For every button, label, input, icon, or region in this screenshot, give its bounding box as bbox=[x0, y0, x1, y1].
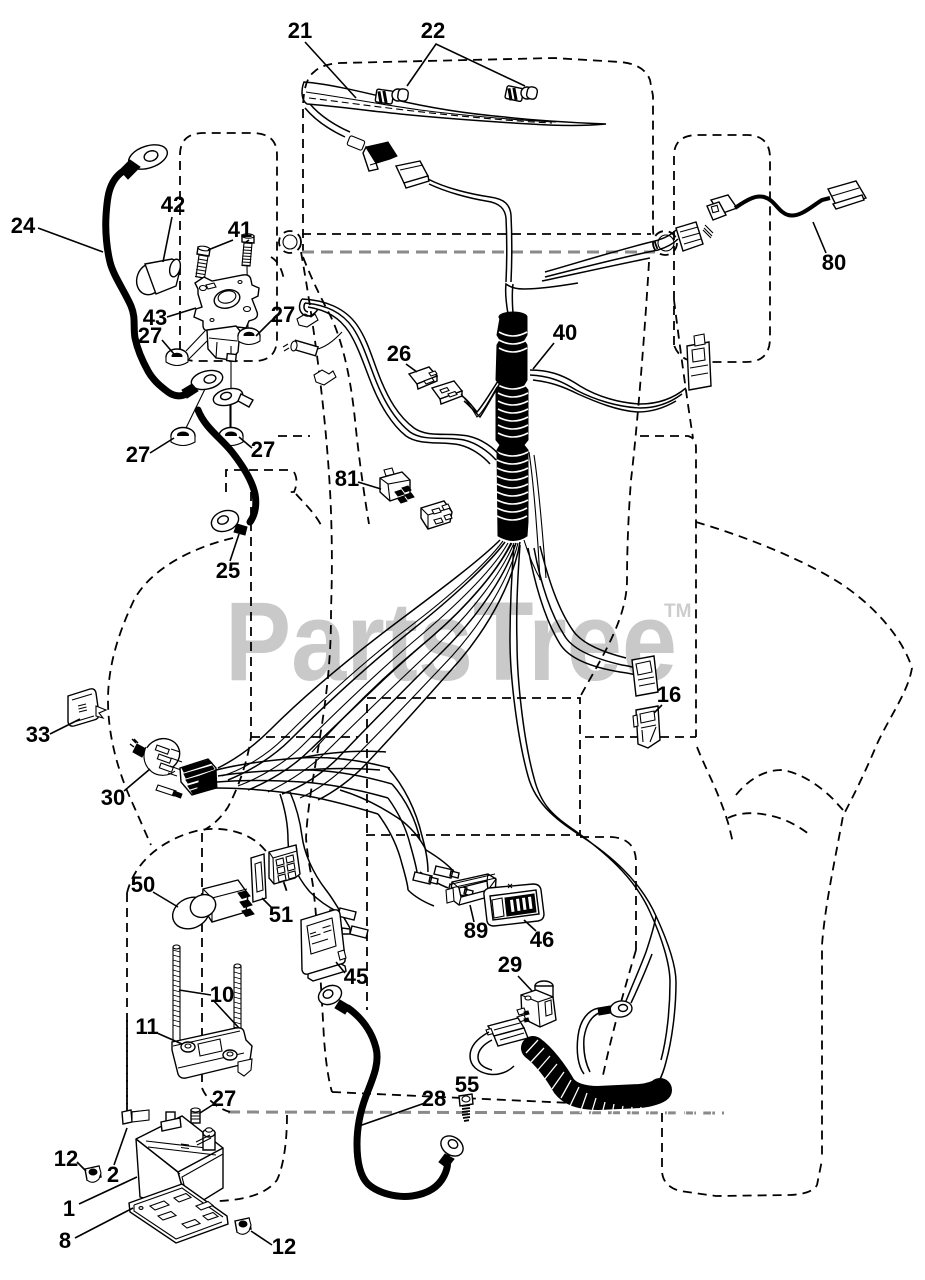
svg-text:27: 27 bbox=[212, 1086, 236, 1111]
svg-text:TM: TM bbox=[664, 601, 691, 622]
svg-text:8: 8 bbox=[59, 1228, 71, 1253]
svg-text:33: 33 bbox=[26, 722, 50, 747]
svg-text:1: 1 bbox=[63, 1196, 75, 1221]
svg-text:12: 12 bbox=[54, 1146, 78, 1171]
svg-text:55: 55 bbox=[455, 1072, 479, 1097]
svg-text:45: 45 bbox=[344, 964, 368, 989]
svg-text:89: 89 bbox=[464, 918, 488, 943]
svg-text:81: 81 bbox=[335, 466, 359, 491]
svg-text:26: 26 bbox=[387, 341, 411, 366]
svg-text:22: 22 bbox=[421, 18, 445, 43]
svg-text:30: 30 bbox=[101, 785, 125, 810]
svg-text:21: 21 bbox=[288, 18, 312, 43]
svg-text:41: 41 bbox=[228, 217, 252, 242]
svg-text:2: 2 bbox=[107, 1162, 119, 1187]
svg-text:27: 27 bbox=[251, 437, 275, 462]
svg-text:50: 50 bbox=[131, 872, 155, 897]
svg-text:16: 16 bbox=[657, 682, 681, 707]
svg-text:27: 27 bbox=[126, 442, 150, 467]
svg-text:12: 12 bbox=[272, 1234, 296, 1259]
svg-text:27: 27 bbox=[271, 302, 295, 327]
svg-text:25: 25 bbox=[216, 558, 240, 583]
svg-text:46: 46 bbox=[530, 927, 554, 952]
svg-text:29: 29 bbox=[498, 952, 522, 977]
svg-text:80: 80 bbox=[822, 250, 846, 275]
svg-text:28: 28 bbox=[422, 1086, 446, 1111]
svg-text:24: 24 bbox=[11, 213, 36, 238]
svg-text:40: 40 bbox=[553, 320, 577, 345]
svg-text:51: 51 bbox=[269, 902, 293, 927]
svg-text:27: 27 bbox=[138, 323, 162, 348]
svg-text:11: 11 bbox=[135, 1014, 158, 1039]
svg-text:42: 42 bbox=[161, 192, 185, 217]
svg-text:10: 10 bbox=[210, 982, 234, 1007]
